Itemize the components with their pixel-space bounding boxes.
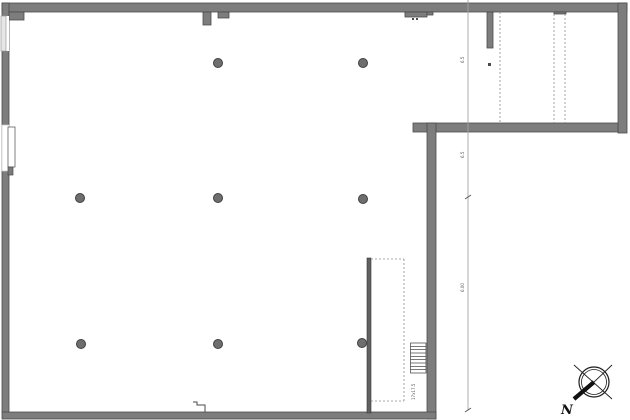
center-vertical-wall [427, 123, 436, 419]
window-frame-top-left [1, 16, 6, 51]
stub-wall-top-right [487, 12, 493, 48]
top-wall-pier-b [218, 12, 229, 18]
column-dot-0 [214, 59, 223, 68]
door-block-left [8, 167, 13, 175]
stair-annotation: 17x17.5 [411, 383, 416, 400]
column-dot-6 [214, 340, 223, 349]
stair-outline [411, 343, 427, 373]
top-wall [2, 3, 627, 12]
column-dot-7 [358, 339, 367, 348]
north-label: N [560, 403, 574, 418]
stairwell-thin-wall [367, 258, 371, 413]
column-dot-5 [77, 340, 86, 349]
small-marker-1 [412, 18, 414, 20]
floor-plan-viewport: 6.56.56.0017x17.5N [0, 0, 630, 420]
dimension-label-1: 6.5 [460, 151, 465, 158]
column-dot-2 [76, 194, 85, 203]
column-dot-3 [214, 194, 223, 203]
top-left-corner-step [9, 12, 24, 20]
threshold-symbol [193, 402, 205, 412]
small-marker-0 [488, 63, 491, 66]
dimension-label-0: 6.5 [460, 56, 465, 63]
left-wall [2, 3, 9, 413]
door-leaf-left [8, 127, 15, 167]
column-dot-1 [359, 59, 368, 68]
top-wall-pier-right [554, 12, 566, 14]
dimension-label-2: 6.00 [460, 283, 465, 292]
floor-plan-canvas: 6.56.56.0017x17.5N [0, 0, 630, 420]
small-marker-2 [416, 18, 418, 20]
column-dot-4 [359, 195, 368, 204]
top-wall-protrusion-deep [405, 12, 427, 17]
top-wall-pier-a [203, 12, 211, 25]
right-wall [618, 3, 627, 133]
mid-horizontal-wall [413, 123, 618, 132]
